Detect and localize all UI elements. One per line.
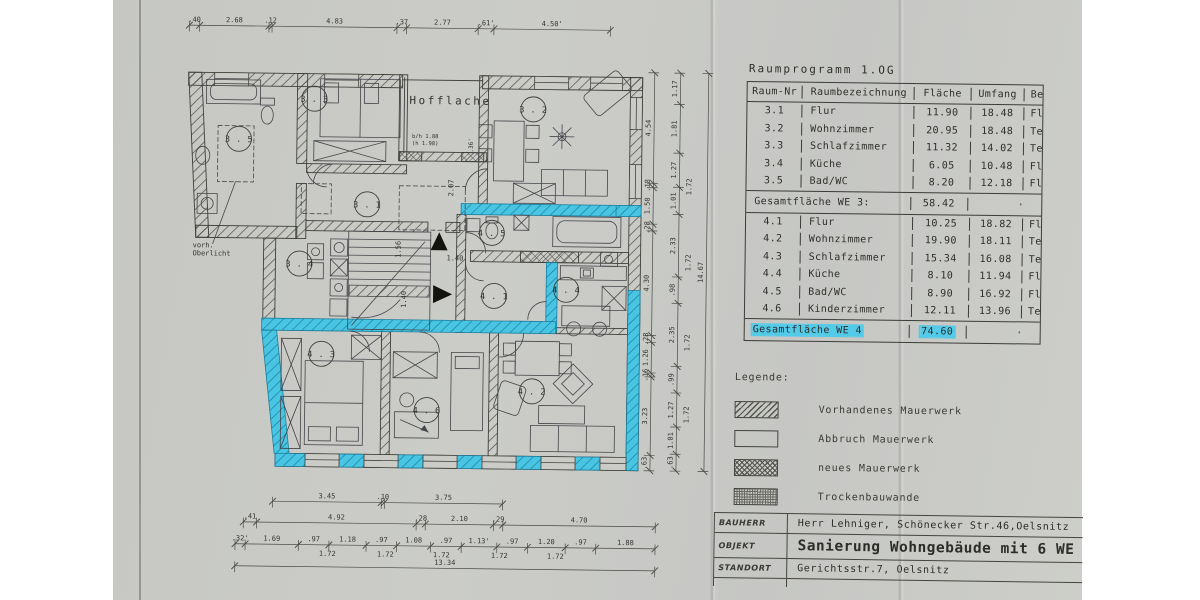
dots-swatch	[734, 488, 778, 505]
svg-text:4.83: 4.83	[326, 17, 343, 25]
svg-text:1.72: 1.72	[547, 553, 564, 561]
svg-text:13.34: 13.34	[434, 559, 455, 567]
svg-text:.97: .97	[307, 535, 320, 543]
svg-text:1.72: 1.72	[684, 254, 692, 271]
svg-text:2.68: 2.68	[226, 16, 243, 24]
svg-text:3 . 1: 3 . 1	[353, 200, 381, 210]
svg-text:1.72: 1.72	[685, 178, 693, 195]
svg-text:4.70: 4.70	[571, 516, 588, 524]
svg-text:4 . 3: 4 . 3	[307, 350, 335, 360]
title-block: BAUHERRHerr Lehniger, Schönecker Str.46,…	[713, 512, 1083, 591]
svg-text:4.92: 4.92	[328, 513, 345, 521]
svg-text:.99: .99	[667, 373, 675, 386]
svg-text:3 . 5: 3 . 5	[225, 135, 253, 145]
svg-text:1.40: 1.40	[446, 254, 463, 262]
svg-text:vorh.: vorh.	[193, 241, 214, 249]
svg-text:1.08: 1.08	[405, 536, 422, 544]
room-table: Raum-NrRaumbezeichnungFlächeUmfangBelag3…	[744, 81, 1044, 344]
svg-text:2.77: 2.77	[434, 19, 451, 27]
svg-text:3.23: 3.23	[641, 408, 649, 425]
svg-text:(h 1.98): (h 1.98)	[412, 141, 439, 147]
svg-text:4 . 5: 4 . 5	[478, 229, 506, 239]
coffee-table	[539, 405, 585, 424]
sofa	[582, 69, 633, 117]
svg-text:3 . 2: 3 . 2	[519, 105, 547, 115]
room-program: Raumprogramm 1.OG Raum-NrRaumbezeichnung…	[744, 62, 1047, 344]
svg-text:3 . 4: 3 . 4	[285, 260, 313, 270]
svg-text:Oberlicht: Oberlicht	[193, 249, 231, 257]
table-row: Gesamtfläche WE 474.60	[745, 317, 1040, 343]
legend-item: Vorhandenes Mauerwerk	[734, 395, 962, 426]
svg-text:1.13': 1.13'	[468, 537, 489, 545]
sofa	[541, 169, 607, 196]
stair-arrow-down	[433, 285, 452, 303]
svg-text:1.72: 1.72	[683, 334, 691, 351]
svg-text:1.72: 1.72	[491, 552, 508, 560]
toilet	[260, 98, 274, 105]
svg-text:1.27: 1.27	[670, 162, 678, 179]
svg-text:4.30: 4.30	[643, 275, 651, 292]
svg-text:1.01: 1.01	[670, 192, 678, 209]
svg-text:.61': .61'	[478, 19, 495, 27]
svg-text:1.72: 1.72	[319, 550, 336, 558]
legend: Legende: Vorhandenes MauerwerkAbbruch Ma…	[734, 372, 963, 513]
svg-text:3 . 3: 3 . 3	[300, 95, 328, 105]
svg-text:.32': .32'	[232, 534, 249, 542]
svg-text:1.27: 1.27	[667, 402, 675, 419]
svg-text:1.72: 1.72	[377, 550, 394, 558]
svg-text:1.20: 1.20	[538, 538, 555, 546]
svg-text:1.56: 1.56	[395, 241, 403, 258]
svg-text:.40: .40	[188, 16, 201, 24]
svg-text:4.54: 4.54	[645, 120, 653, 137]
sofa	[530, 425, 614, 452]
svg-text:.16: .16	[642, 369, 650, 382]
svg-text:2.35: 2.35	[668, 326, 676, 343]
svg-text:.98: .98	[669, 284, 677, 297]
svg-text:1.72: 1.72	[683, 406, 691, 423]
svg-text:4.50': 4.50'	[542, 20, 563, 28]
svg-text:1.88: 1.88	[617, 539, 634, 547]
chair	[400, 393, 414, 407]
table	[493, 121, 524, 181]
svg-text:3.75: 3.75	[435, 494, 452, 502]
svg-text:2.10: 2.10	[451, 515, 468, 523]
svg-text:.97: .97	[375, 536, 388, 544]
svg-text:.63: .63	[666, 456, 674, 469]
svg-text:.36': .36'	[468, 138, 475, 153]
svg-text:1.50: 1.50	[644, 197, 652, 214]
svg-text:4 . 1: 4 . 1	[480, 292, 508, 302]
svg-text:14.67: 14.67	[697, 262, 705, 283]
svg-text:b/h 1.88: b/h 1.88	[412, 134, 439, 140]
svg-text:.97: .97	[506, 538, 519, 546]
stair-arrow-up	[431, 232, 448, 250]
svg-text:.41: .41	[244, 512, 257, 520]
svg-text:1.01: 1.01	[667, 432, 675, 449]
svg-text:.28: .28	[642, 333, 650, 346]
titleblock-row: OBJEKTSanierung Wohngebäude mit 6 WE	[714, 532, 1082, 562]
svg-text:1.18: 1.18	[339, 536, 356, 544]
svg-text:1.69: 1.69	[263, 535, 280, 543]
diag-swatch	[735, 401, 779, 418]
plant	[550, 125, 574, 149]
table-title: Raumprogramm 1.OG	[749, 62, 1047, 79]
svg-text:3.45: 3.45	[318, 492, 335, 500]
svg-text:.97: .97	[574, 538, 587, 546]
svg-text:1.26: 1.26	[642, 349, 650, 366]
svg-text:.97: .97	[440, 537, 453, 545]
svg-text:4 . 6: 4 . 6	[413, 406, 441, 416]
photo-of-floor-plan: { "colors":{"paper":"#c8c9c5","highlight…	[0, 0, 1200, 600]
table	[515, 341, 559, 376]
svg-text:Hofflache: Hofflache	[409, 94, 491, 108]
svg-text:1.81: 1.81	[671, 120, 679, 137]
svg-text:.28: .28	[643, 221, 651, 234]
svg-text:4 . 2: 4 . 2	[518, 387, 546, 397]
legend-item: Abbruch Mauerwerk	[734, 424, 962, 455]
svg-text:2.07: 2.07	[447, 179, 455, 196]
legend-item: Trockenbauwande	[734, 482, 962, 513]
legend-title: Legende:	[735, 372, 962, 385]
legend-item: neues Mauerwerk	[734, 453, 962, 484]
svg-text:1.40: 1.40	[400, 291, 408, 308]
empty-swatch	[734, 430, 778, 447]
svg-text:4 . 4: 4 . 4	[552, 286, 580, 296]
svg-text:2.33: 2.33	[669, 237, 677, 254]
cross-swatch	[734, 459, 778, 476]
svg-text:.63: .63	[640, 457, 648, 470]
svg-text:1.17: 1.17	[671, 80, 679, 97]
